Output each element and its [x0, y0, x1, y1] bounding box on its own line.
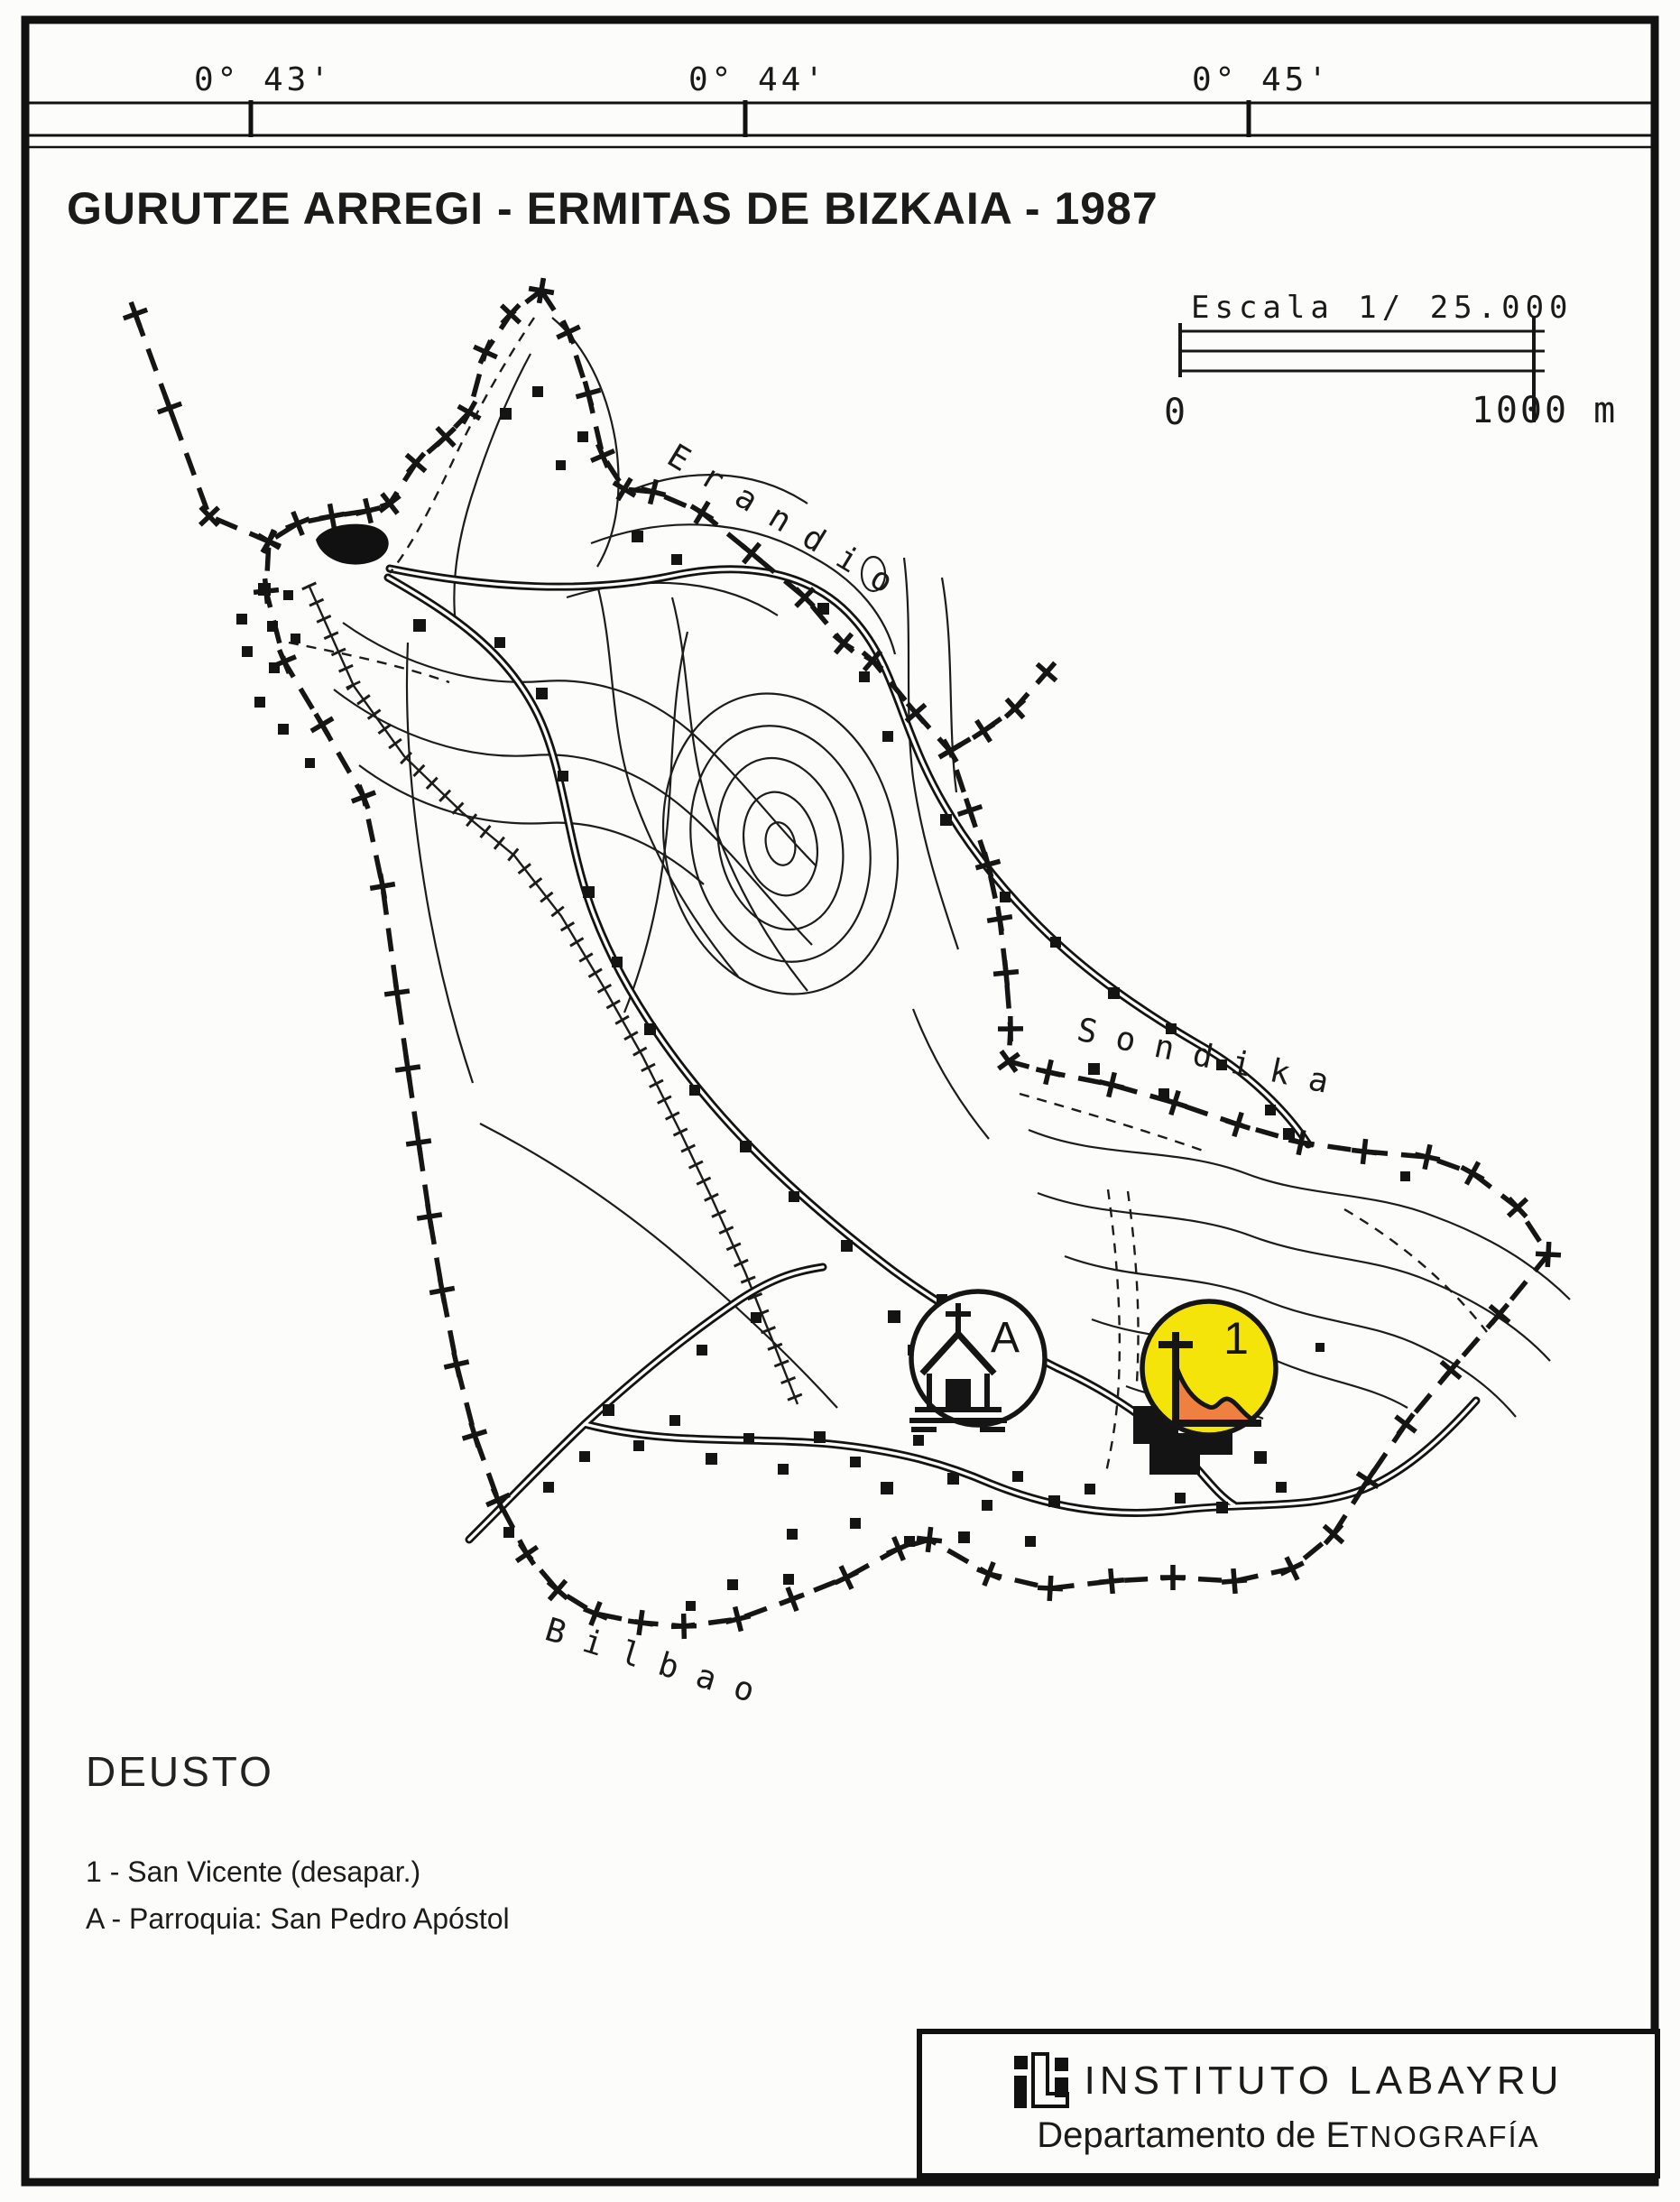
scanned-map-page: 0° 43' 0° 44' 0° 45' Escala 1/ 25.000 0 …	[0, 0, 1680, 2202]
scale-label: Escala 1/ 25.000	[1191, 290, 1574, 326]
legend-entry-1: 1 - San Vicente (desapar.)	[86, 1855, 420, 1889]
marker-ermita-1: 1	[1142, 1301, 1276, 1435]
institute-box: INSTITUTO LABAYRU Departamento de ETNOGR…	[917, 2029, 1660, 2179]
marker-1-number: 1	[1223, 1313, 1249, 1364]
municipal-boundary	[135, 291, 1548, 1626]
department-word-rest: TNOGRAFÍA	[1350, 2120, 1540, 2153]
contour-lines	[334, 318, 1570, 1419]
place-label-bilbao: Bilbao	[540, 1611, 778, 1716]
longitude-scale: 0° 43' 0° 44' 0° 45'	[194, 61, 1331, 98]
district-name: DEUSTO	[86, 1747, 274, 1796]
longitude-label-43: 0° 43'	[194, 61, 333, 98]
pond	[316, 524, 389, 565]
marker-a-letter: A	[991, 1314, 1020, 1362]
scale-max-label: 1000 m	[1472, 390, 1619, 431]
department-prefix: Departamento de	[1037, 2115, 1325, 2155]
labayru-logo	[1014, 2052, 1070, 2110]
longitude-label-44: 0° 44'	[688, 61, 827, 98]
map-title: GURUTZE ARREGI - ERMITAS DE BIZKAIA - 19…	[67, 182, 1158, 235]
trails	[289, 318, 1487, 1476]
department-name: Departamento de ETNOGRAFÍA	[1037, 2115, 1539, 2156]
hatched-line	[309, 585, 798, 1404]
boundary-spur-northwest	[135, 314, 269, 541]
boundary-spur-northeast	[950, 672, 1047, 751]
department-word-initial: E	[1326, 2115, 1351, 2155]
legend-entry-a: A - Parroquia: San Pedro Apóstol	[86, 1902, 510, 1936]
scale-bar: Escala 1/ 25.000 0 1000 m	[1164, 290, 1618, 433]
marker-parroquia-a: A	[909, 1291, 1045, 1429]
longitude-label-45: 0° 45'	[1192, 61, 1331, 98]
place-label-sondika: Sondika	[1074, 1012, 1352, 1106]
scale-min-label: 0	[1164, 392, 1186, 433]
institute-name: INSTITUTO LABAYRU	[1085, 2059, 1564, 2104]
